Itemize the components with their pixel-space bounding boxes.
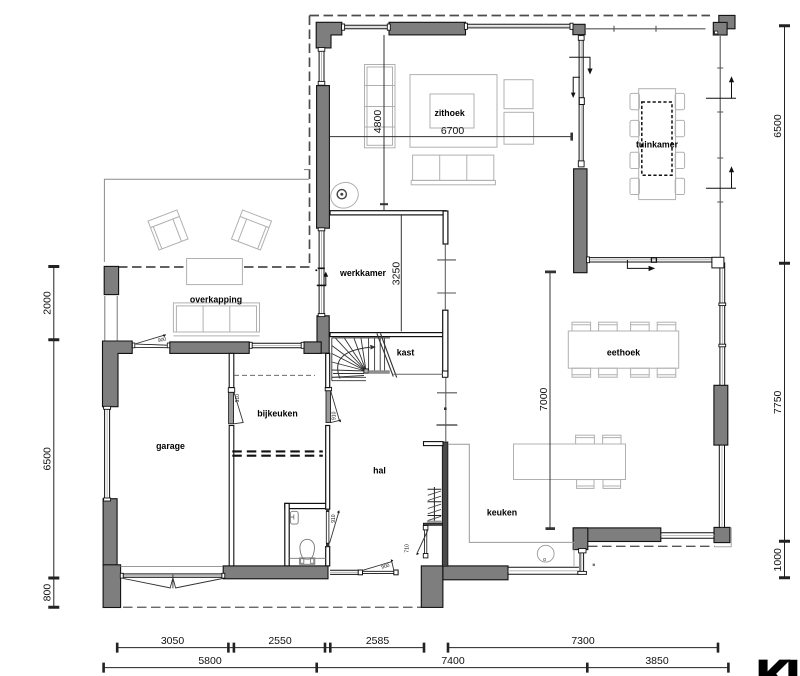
svg-text:7000: 7000 bbox=[538, 387, 550, 411]
svg-text:2550: 2550 bbox=[268, 635, 292, 647]
svg-text:KL: KL bbox=[757, 652, 800, 676]
svg-text:2000: 2000 bbox=[42, 291, 54, 315]
svg-text:bijkeuken: bijkeuken bbox=[257, 408, 298, 418]
svg-text:7750: 7750 bbox=[772, 390, 784, 414]
svg-text:4800: 4800 bbox=[372, 110, 384, 134]
svg-text:overkapping: overkapping bbox=[190, 295, 242, 305]
svg-text:5800: 5800 bbox=[198, 655, 222, 667]
svg-text:3850: 3850 bbox=[645, 655, 669, 667]
svg-text:7400: 7400 bbox=[441, 655, 465, 667]
svg-text:800: 800 bbox=[42, 584, 54, 602]
svg-text:910: 910 bbox=[331, 514, 337, 523]
svg-text:3050: 3050 bbox=[161, 635, 185, 647]
svg-text:werkkamer: werkkamer bbox=[339, 268, 387, 278]
svg-text:3250: 3250 bbox=[390, 262, 402, 286]
svg-text:910: 910 bbox=[331, 411, 337, 420]
svg-text:1000: 1000 bbox=[772, 548, 784, 572]
svg-text:6700: 6700 bbox=[441, 125, 465, 137]
svg-text:zithoek: zithoek bbox=[434, 108, 464, 118]
svg-text:hal: hal bbox=[373, 466, 386, 476]
svg-text:6500: 6500 bbox=[772, 114, 784, 138]
svg-text:garage: garage bbox=[156, 441, 185, 451]
svg-text:eethoek: eethoek bbox=[607, 348, 640, 358]
svg-text:7300: 7300 bbox=[571, 635, 595, 647]
svg-text:tuinkamer: tuinkamer bbox=[636, 140, 679, 150]
svg-text:kast: kast bbox=[397, 348, 415, 358]
svg-text:keuken: keuken bbox=[487, 508, 517, 518]
svg-text:910: 910 bbox=[235, 394, 241, 403]
svg-text:710: 710 bbox=[404, 544, 410, 553]
svg-text:2585: 2585 bbox=[366, 635, 390, 647]
svg-text:6500: 6500 bbox=[42, 447, 54, 471]
